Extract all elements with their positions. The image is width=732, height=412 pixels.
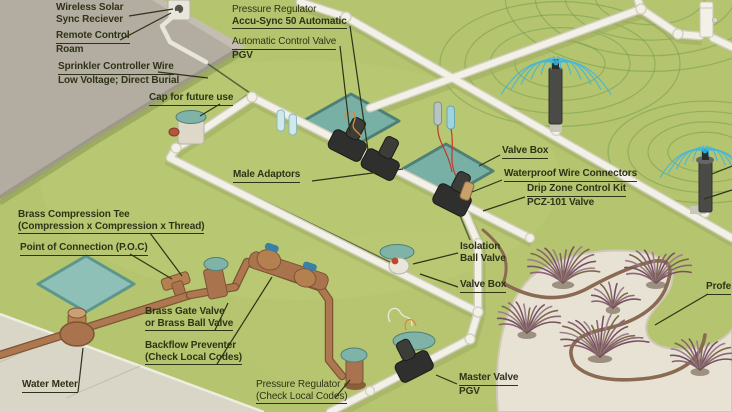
label-line: Sprinkler Controller Wire <box>58 61 174 75</box>
label-line: Water Meter <box>22 379 78 393</box>
label-line: Sync Reciever <box>56 14 123 26</box>
label-line: (Compression x Compression x Thread) <box>18 221 204 235</box>
label-automatic-control-valve: Automatic Control Valve PGV <box>232 36 336 61</box>
label-line: Roam <box>56 44 130 56</box>
label-line: Remote Control <box>56 30 130 44</box>
label-line: Master Valve <box>459 372 518 386</box>
label-line: Valve Box <box>460 279 506 293</box>
label-line: (Check Local Codes) <box>145 352 242 366</box>
red-cap <box>169 128 179 136</box>
label-pressure-regulator-codes: Pressure Regulator (Check Local Codes) <box>256 379 347 404</box>
label-wire-connectors: Waterproof Wire Connectors <box>504 168 637 182</box>
label-line: Valve Box <box>502 145 548 159</box>
label-male-adaptors: Male Adaptors <box>233 169 300 183</box>
label-backflow-preventer: Backflow Preventer (Check Local Codes) <box>145 340 242 365</box>
red-handle <box>392 258 399 265</box>
label-line: (Check Local Codes) <box>256 391 347 405</box>
label-line: Ball Valve <box>460 253 506 265</box>
label-compression-tee: Brass Compression Tee (Compression x Com… <box>18 209 204 234</box>
label-line: Waterproof Wire Connectors <box>504 168 637 182</box>
label-line: PGV <box>232 50 336 62</box>
label-controller-wire: Sprinkler Controller Wire Low Voltage; D… <box>58 61 179 86</box>
label-line: Cap for future use <box>149 92 233 106</box>
label-isolation-ball-valve: Isolation Ball Valve <box>460 241 506 264</box>
label-line: Low Voltage; Direct Burial <box>58 75 179 87</box>
label-gate-valve: Brass Gate Valve or Brass Ball Valve <box>145 306 233 331</box>
label-line: Pressure Regulator <box>232 4 347 16</box>
label-line: Brass Gate Valve <box>145 306 233 318</box>
label-line: PCZ-101 Valve <box>527 197 626 209</box>
label-drip-zone-kit: Drip Zone Control Kit PCZ-101 Valve <box>527 183 626 208</box>
label-line: Male Adaptors <box>233 169 300 183</box>
label-line: Brass Compression Tee <box>18 209 204 221</box>
label-line: Drip Zone Control Kit <box>527 183 626 197</box>
label-master-valve: Master Valve PGV <box>459 372 518 397</box>
label-line: Automatic Control Valve <box>232 36 336 50</box>
label-line: Wireless Solar <box>56 2 123 14</box>
label-line: PGV <box>459 386 518 398</box>
label-valve-box-mid: Valve Box <box>460 279 506 293</box>
label-water-meter: Water Meter <box>22 379 78 393</box>
label-wireless-receiver: Wireless Solar Sync Reciever <box>56 2 123 25</box>
label-line: Profe <box>706 281 731 295</box>
label-professional-clipped: Profe <box>706 281 731 295</box>
label-line: Pressure Regulator <box>256 379 347 391</box>
label-line: Backflow Preventer <box>145 340 242 352</box>
label-line: Accu-Sync 50 Automatic <box>232 16 347 30</box>
label-poc: Point of Connection (P.O.C) <box>20 242 148 256</box>
label-remote-control: Remote Control Roam <box>56 30 130 55</box>
label-line: or Brass Ball Valve <box>145 318 233 332</box>
label-line: Point of Connection (P.O.C) <box>20 242 148 256</box>
label-line: Isolation <box>460 241 506 253</box>
label-cap-future-use: Cap for future use <box>149 92 233 106</box>
label-pressure-regulator-accusync: Pressure Regulator Accu-Sync 50 Automati… <box>232 4 347 29</box>
pop-up-sprinkler-1 <box>549 59 562 132</box>
label-valve-box-right: Valve Box <box>502 145 548 159</box>
irrigation-diagram: Wireless Solar Sync Reciever Remote Cont… <box>0 0 732 412</box>
